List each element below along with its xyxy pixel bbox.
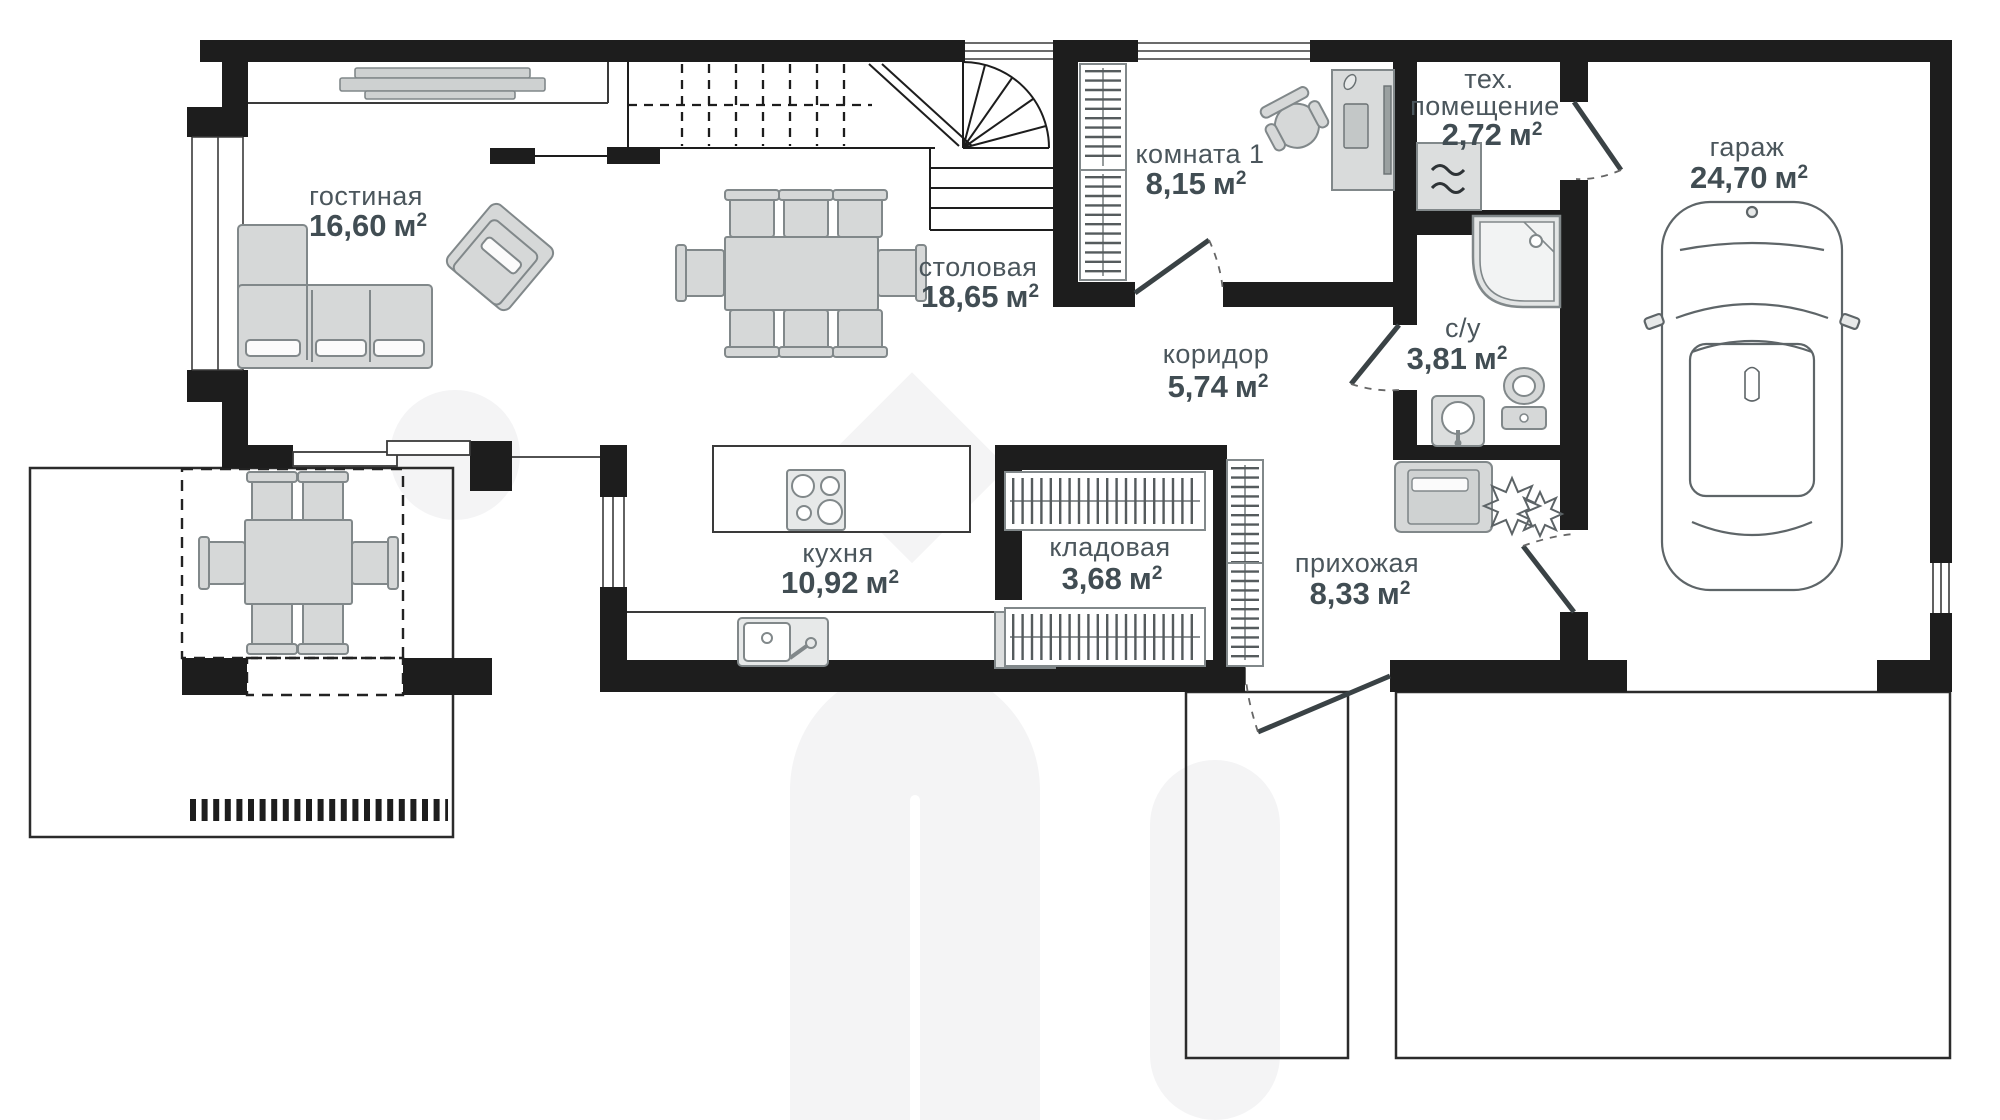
room-area-garage: 24,70м2 [1690, 160, 1808, 195]
terrace [30, 468, 453, 837]
hall-wardrobe [1227, 460, 1263, 666]
room-area-bath: 3,81м2 [1407, 341, 1508, 376]
room-label-living: гостиная [309, 181, 423, 211]
room1-wardrobe [1080, 64, 1126, 280]
room-area-dining: 18,65м2 [921, 279, 1039, 314]
stair-break-line [869, 64, 972, 146]
armchair-icon [444, 201, 557, 314]
window-kitchen-west [600, 497, 627, 587]
room-area-hall: 8,33м2 [1310, 576, 1411, 611]
room-label-bath: с/у [1445, 313, 1481, 343]
room-area-room1: 8,15м2 [1146, 166, 1247, 201]
room-label-room1: комната 1 [1135, 139, 1264, 169]
room-area-living: 16,60м2 [309, 208, 427, 243]
driveway-outline [1396, 692, 1950, 1058]
door-room1 [1135, 240, 1223, 293]
car-icon [1644, 202, 1860, 590]
room-label-garage: гараж [1710, 132, 1785, 162]
room-area-corridor: 5,74м2 [1168, 369, 1269, 404]
floor-plan-drawing: ✳ [0, 0, 2000, 1120]
door-entrance [1246, 676, 1390, 732]
boiler-icon [1417, 143, 1481, 210]
window-top-2 [1138, 40, 1310, 62]
hall-bench-icon [1395, 462, 1492, 532]
doors [1135, 102, 1621, 732]
stair-upper-flight-dashed [628, 64, 872, 146]
room-label-corridor: коридор [1163, 339, 1270, 369]
office-chair-icon [1255, 83, 1333, 159]
dining-table-icon [676, 190, 926, 357]
plant-icon [1484, 478, 1562, 536]
room-area-tech: 2,72м2 [1442, 117, 1543, 152]
floor-plan-page: ✳ [0, 0, 2000, 1120]
kitchen-island [713, 446, 970, 532]
room-label-dining: столовая [919, 252, 1038, 282]
sofa-icon [238, 225, 432, 368]
window-top-1 [965, 40, 1053, 62]
terrace-outline [30, 468, 453, 837]
toilet-icon [1502, 368, 1546, 429]
window-garage-east [1930, 563, 1952, 613]
stove-icon [787, 470, 845, 530]
sink-bathroom-icon [1432, 396, 1484, 447]
kitchen-counter: ✳ [627, 612, 1055, 668]
door-tech-to-garage [1574, 102, 1621, 179]
room-area-storage: 3,68м2 [1062, 561, 1163, 596]
terrace-step-dashed [247, 658, 403, 695]
desk-icon [1332, 70, 1394, 190]
shower-icon [1473, 216, 1560, 307]
room-area-kitchen: 10,92м2 [781, 565, 899, 600]
door-bathroom [1351, 325, 1399, 390]
room-label-tech-1: тех. [1464, 64, 1514, 94]
room-label-storage: кладовая [1049, 532, 1170, 562]
tv-console-icon [340, 68, 545, 99]
door-hall-to-garage [1523, 534, 1574, 612]
room-label-kitchen: кухня [802, 538, 873, 568]
terrace-table-icon [199, 472, 398, 654]
sink-icon [738, 618, 828, 666]
room-label-hall: прихожая [1295, 548, 1419, 578]
